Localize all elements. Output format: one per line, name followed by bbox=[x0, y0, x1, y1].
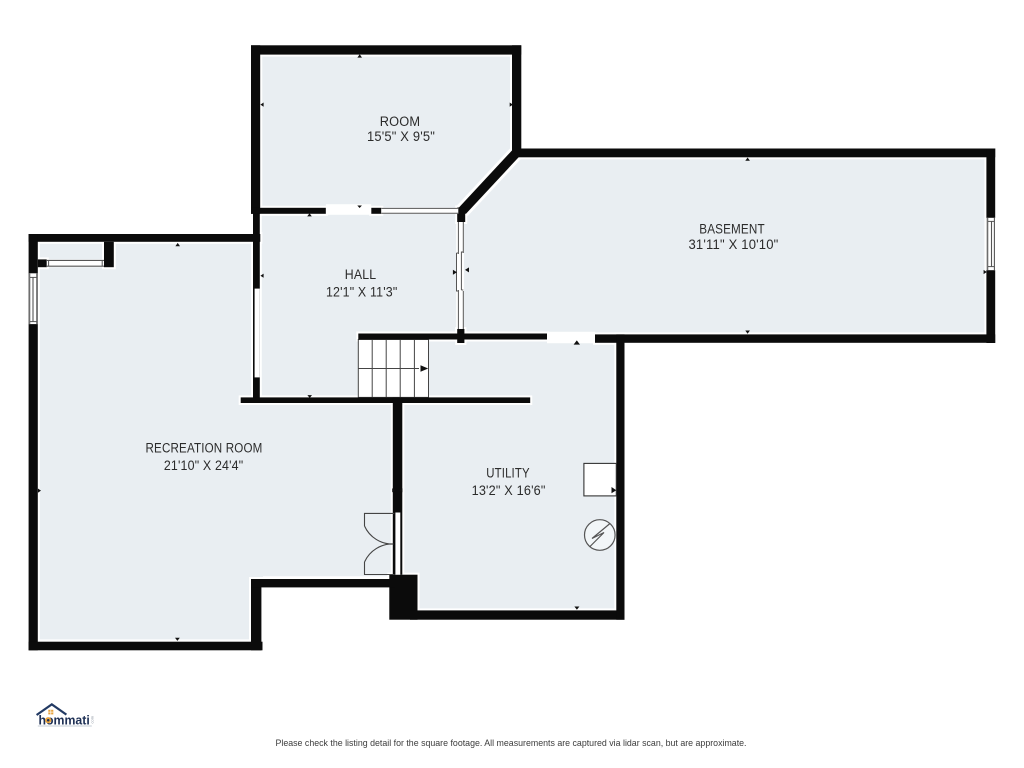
svg-text:com: com bbox=[90, 715, 95, 723]
svg-text:UTILITY: UTILITY bbox=[486, 466, 530, 482]
svg-text:Please check the listing detai: Please check the listing detail for the … bbox=[276, 738, 747, 749]
svg-text:ROOM: ROOM bbox=[380, 114, 421, 130]
svg-text:21'10" X 24'4": 21'10" X 24'4" bbox=[164, 458, 244, 474]
svg-text:HALL: HALL bbox=[345, 267, 377, 283]
svg-text:31'11" X 10'10": 31'11" X 10'10" bbox=[689, 237, 779, 253]
svg-text:13'2" X 16'6": 13'2" X 16'6" bbox=[472, 483, 546, 499]
svg-text:15'5" X 9'5": 15'5" X 9'5" bbox=[367, 129, 435, 145]
svg-text:RECREATION ROOM: RECREATION ROOM bbox=[146, 441, 263, 457]
svg-text:12'1" X 11'3": 12'1" X 11'3" bbox=[326, 284, 398, 300]
svg-text:BASEMENT: BASEMENT bbox=[699, 221, 765, 237]
